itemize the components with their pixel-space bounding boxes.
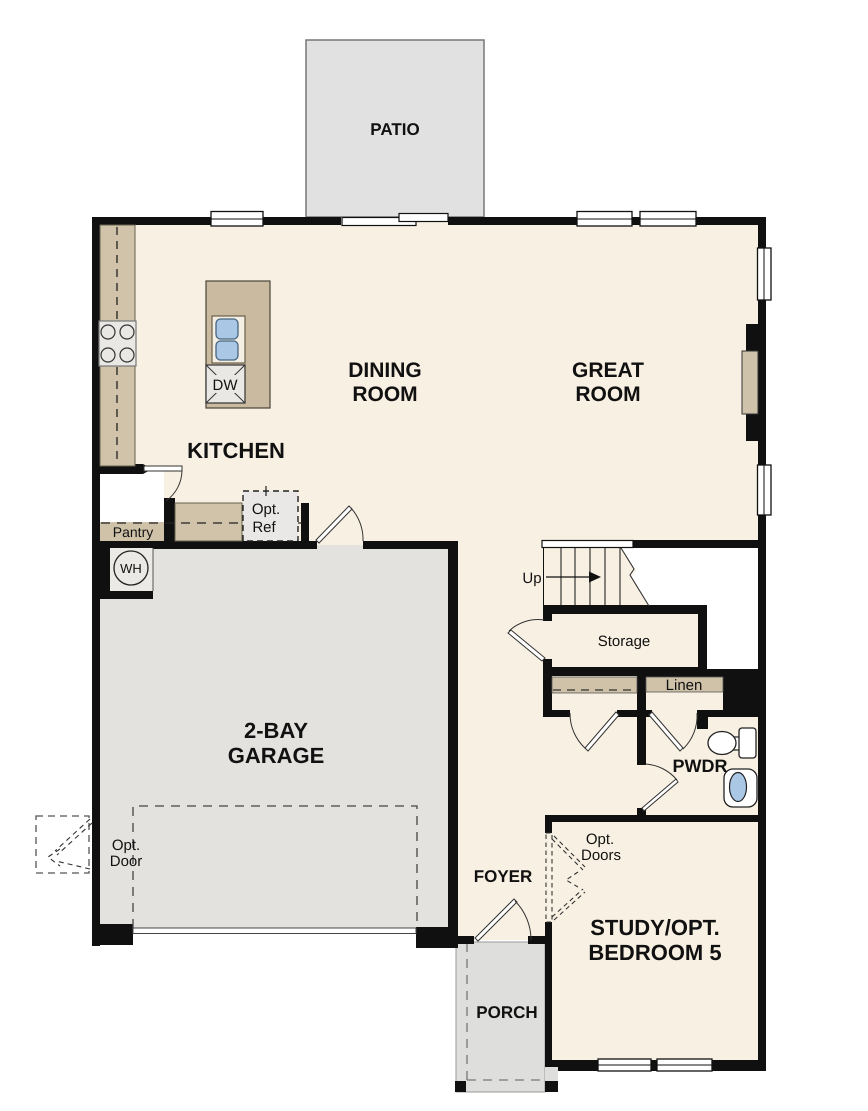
svg-text:DW: DW: [213, 377, 239, 394]
svg-text:Opt.: Opt.: [586, 831, 614, 848]
svg-text:FOYER: FOYER: [474, 867, 533, 886]
svg-text:BEDROOM 5: BEDROOM 5: [588, 940, 721, 965]
svg-text:ROOM: ROOM: [352, 383, 417, 406]
svg-text:Opt.: Opt.: [252, 501, 280, 518]
svg-text:Doors: Doors: [581, 847, 621, 864]
svg-text:PWDR: PWDR: [673, 756, 728, 776]
svg-text:GARAGE: GARAGE: [228, 743, 325, 768]
svg-text:STUDY/OPT.: STUDY/OPT.: [590, 915, 720, 940]
svg-text:Linen: Linen: [666, 677, 703, 694]
svg-text:Ref: Ref: [252, 519, 276, 536]
svg-text:PATIO: PATIO: [370, 120, 419, 139]
svg-text:PORCH: PORCH: [476, 1003, 537, 1022]
svg-text:2-BAY: 2-BAY: [244, 718, 308, 743]
svg-text:DINING: DINING: [348, 359, 422, 382]
svg-text:KITCHEN: KITCHEN: [187, 438, 285, 463]
svg-text:Door: Door: [110, 853, 143, 870]
svg-text:Opt.: Opt.: [112, 837, 140, 854]
svg-text:ROOM: ROOM: [575, 383, 640, 406]
svg-text:Pantry: Pantry: [113, 524, 153, 540]
svg-text:Storage: Storage: [598, 633, 651, 650]
svg-text:GREAT: GREAT: [572, 359, 644, 382]
svg-text:Up: Up: [522, 570, 541, 587]
svg-text:WH: WH: [120, 561, 142, 576]
